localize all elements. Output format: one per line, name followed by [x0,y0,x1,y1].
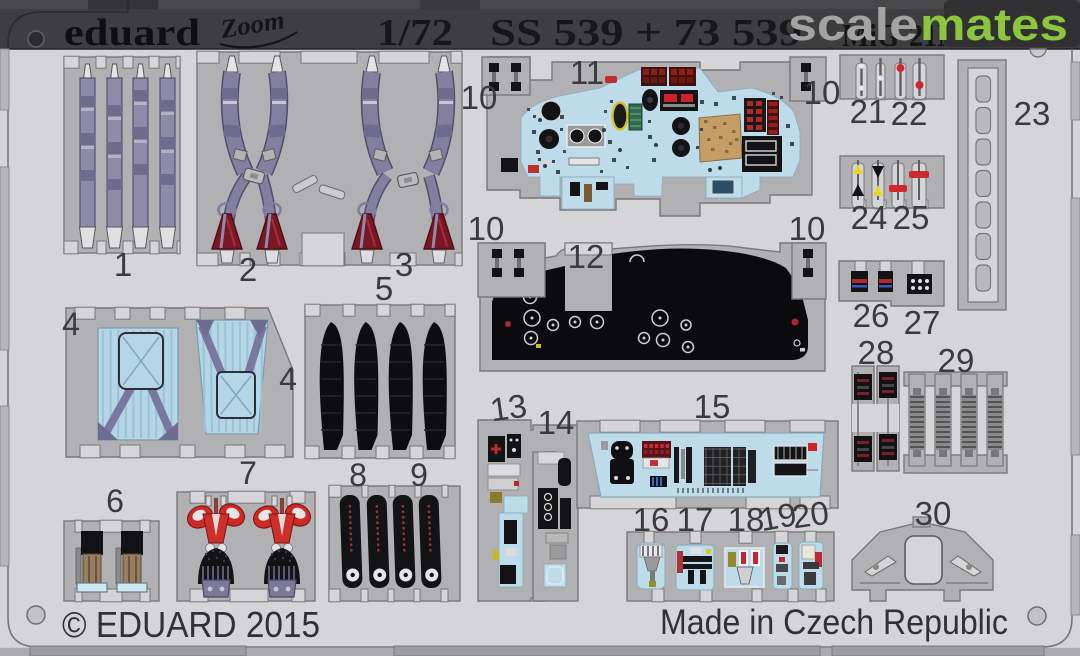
svg-text:1/72: 1/72 [377,12,453,54]
svg-text:2: 2 [239,251,257,288]
svg-text:4: 4 [62,306,80,342]
svg-text:scale: scale [788,0,918,50]
svg-text:11: 11 [570,54,604,91]
svg-text:© EDUARD 2015: © EDUARD 2015 [62,604,320,645]
svg-text:4: 4 [279,361,297,397]
svg-text:13: 13 [488,387,530,429]
svg-text:26: 26 [853,297,890,334]
svg-text:10: 10 [804,74,841,111]
svg-text:12: 12 [568,238,605,275]
svg-text:10: 10 [461,79,498,116]
svg-text:9: 9 [410,457,428,493]
svg-text:16: 16 [633,501,670,538]
svg-text:21: 21 [850,93,887,130]
svg-text:27: 27 [904,304,941,341]
svg-text:5: 5 [375,270,393,307]
svg-text:22: 22 [891,95,928,132]
svg-text:10: 10 [789,210,826,247]
svg-text:1: 1 [114,246,132,283]
svg-text:6: 6 [106,483,124,519]
svg-text:29: 29 [938,342,975,379]
svg-text:23: 23 [1014,95,1051,132]
svg-text:24: 24 [851,199,888,236]
svg-text:30: 30 [915,495,952,532]
svg-text:14: 14 [538,404,575,441]
svg-text:25: 25 [893,199,930,236]
svg-text:3: 3 [395,246,413,283]
svg-text:Made in Czech Republic: Made in Czech Republic [660,603,1008,642]
svg-text:15: 15 [694,388,731,425]
svg-text:20: 20 [790,494,832,536]
svg-text:28: 28 [858,334,895,371]
svg-text:17: 17 [677,501,714,538]
svg-text:SS 539 + 73 539: SS 539 + 73 539 [490,12,802,54]
svg-text:10: 10 [468,210,505,247]
svg-text:8: 8 [349,457,367,493]
svg-text:mates: mates [920,0,1068,50]
svg-text:7: 7 [239,455,257,491]
svg-text:eduard: eduard [64,12,200,54]
